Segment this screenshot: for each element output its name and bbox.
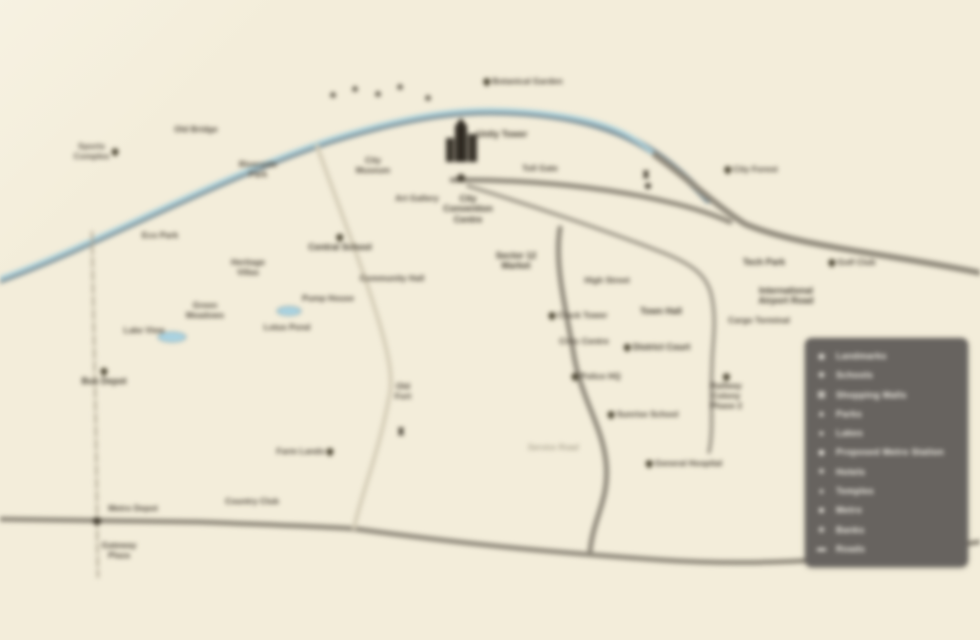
map-label: Lotus Pond bbox=[264, 323, 311, 333]
legend-icon: ■ bbox=[815, 506, 828, 515]
map-label-text: High Street bbox=[584, 276, 629, 286]
map-label: Community Hall bbox=[360, 274, 425, 284]
map-label: City Museum bbox=[356, 156, 390, 176]
map-label-text: Civic Centre bbox=[559, 337, 609, 347]
map-label-text: International Airport Road bbox=[759, 286, 814, 307]
map-label: District Court bbox=[624, 342, 691, 352]
legend-icon: ✚ bbox=[815, 371, 828, 380]
map-label-text: Tech Park bbox=[743, 257, 785, 267]
legend-label: Temples bbox=[836, 486, 874, 496]
map-label-text: Toll Gate bbox=[522, 164, 558, 174]
map-label-text: Clock Tower bbox=[558, 311, 608, 321]
marker-pin-icon bbox=[723, 165, 733, 175]
map-label: Country Club bbox=[225, 497, 279, 507]
map-label: Bus Depot bbox=[82, 368, 127, 386]
tree-icon-glyph: ♣ bbox=[330, 91, 337, 101]
map-label: City Convention Centre bbox=[443, 193, 493, 224]
tree-icon-glyph: ♣ bbox=[425, 94, 432, 104]
legend-icon: ◆ bbox=[815, 448, 828, 457]
map-label-text: Golf Club bbox=[837, 258, 875, 268]
tree-icon: ♣ bbox=[397, 83, 404, 93]
fort-icon: ♜ bbox=[397, 428, 406, 438]
marker-pin-icon bbox=[644, 459, 654, 469]
legend-row: ♦Temples bbox=[815, 482, 958, 500]
legend-row: ▬Roads bbox=[815, 540, 958, 558]
legend-row: ◆Proposed Metro Station bbox=[815, 443, 958, 461]
map-label-text: Unity Tower bbox=[477, 129, 528, 139]
map-label: General Hospital bbox=[646, 459, 723, 469]
map-label: Pump House bbox=[302, 294, 354, 304]
legend-row: ◉Landmarks bbox=[815, 347, 958, 365]
map-label: Riverside Park bbox=[239, 160, 277, 180]
map-label: Farm Lands bbox=[276, 447, 333, 457]
tower-icon-glyph: ♜ bbox=[642, 171, 651, 181]
marker-pin-icon bbox=[110, 147, 120, 157]
map-label: Botanical Garden bbox=[483, 77, 562, 87]
map-label-text: Farm Lands bbox=[276, 447, 324, 457]
map-label: Art Gallery bbox=[395, 194, 438, 204]
map-label: Cargo Terminal bbox=[728, 316, 790, 326]
map-label-text: Gateway Plaza bbox=[102, 541, 137, 561]
map-label-text: District Court bbox=[633, 342, 691, 352]
map-label-text: Botanical Garden bbox=[492, 77, 562, 87]
map-label-text: Community Hall bbox=[360, 274, 425, 284]
tree-icon: ♣ bbox=[352, 85, 359, 95]
map-canvas: Sports ComplexOld BridgeRiverside Park♣♣… bbox=[0, 0, 980, 640]
legend-label: Schools bbox=[836, 370, 873, 380]
map-label-text: Metro Depot bbox=[108, 504, 158, 514]
map-label-text: Art Gallery bbox=[395, 194, 438, 204]
map-label-text: City Forest bbox=[733, 165, 777, 175]
legend-row: ◈Banks bbox=[815, 521, 958, 539]
map-label-text: Riverside Park bbox=[239, 160, 277, 180]
map-legend: ◉Landmarks✚Schools▦Shopping Malls▲Parks●… bbox=[805, 338, 968, 567]
map-label: City Forest bbox=[724, 165, 777, 175]
legend-label: Parks bbox=[836, 409, 862, 419]
marker-pin-icon bbox=[606, 410, 616, 420]
map-label: Unity Tower bbox=[477, 129, 528, 139]
tree-icon: ♣ bbox=[375, 90, 382, 100]
tower-icon: ♜ bbox=[642, 171, 651, 181]
map-label-text: Sunrise School bbox=[617, 410, 679, 420]
map-label-text: Lotus Pond bbox=[264, 323, 311, 333]
map-label-text: Service Road bbox=[527, 443, 578, 453]
tree-icon-glyph: ♣ bbox=[352, 85, 359, 95]
map-label-text: Sector 12 Market bbox=[496, 251, 537, 272]
map-label-text: General Hospital bbox=[655, 459, 723, 469]
legend-row: ★Hotels bbox=[815, 463, 958, 481]
map-label: Civic Centre bbox=[559, 337, 609, 347]
legend-icon: ◈ bbox=[815, 525, 828, 534]
legend-label: Hotels bbox=[836, 467, 865, 477]
legend-row: ■Metro bbox=[815, 501, 958, 519]
tree-icon: ♣ bbox=[425, 94, 432, 104]
map-label-text: City Convention Centre bbox=[443, 193, 493, 224]
map-label: Old Fort bbox=[395, 382, 412, 402]
legend-row: ✚Schools bbox=[815, 366, 958, 384]
map-label: High Street bbox=[584, 276, 629, 286]
legend-icon: ▲ bbox=[815, 409, 828, 418]
map-label: Metro Depot bbox=[108, 504, 158, 514]
map-label: Railway Colony Phase 2 bbox=[710, 373, 742, 410]
marker-pin-icon bbox=[570, 372, 580, 382]
map-label-text: Pump House bbox=[302, 294, 354, 304]
map-label-text: Eco Park bbox=[142, 231, 178, 241]
legend-icon: ◉ bbox=[815, 352, 828, 361]
legend-label: Landmarks bbox=[836, 351, 887, 361]
marker-pin-icon bbox=[827, 258, 837, 268]
legend-label: Lakes bbox=[836, 428, 863, 438]
map-label-text: Police HQ bbox=[580, 372, 620, 382]
legend-row: ●Lakes bbox=[815, 424, 958, 442]
map-label-text: City Museum bbox=[356, 156, 390, 176]
map-label: Gateway Plaza bbox=[102, 541, 137, 561]
map-label-text: Central School bbox=[308, 242, 372, 252]
map-label-text: Railway Colony Phase 2 bbox=[710, 381, 742, 410]
legend-icon: ● bbox=[815, 429, 828, 438]
legend-icon: ▦ bbox=[815, 390, 828, 399]
map-label: Police HQ bbox=[571, 372, 620, 382]
legend-icon: ▬ bbox=[815, 544, 828, 553]
map-label-text: Green Meadows bbox=[186, 301, 224, 321]
legend-row: ▲Parks bbox=[815, 405, 958, 423]
map-label: Sunrise School bbox=[608, 410, 679, 420]
map-label-text: Bus Depot bbox=[82, 376, 127, 386]
map-label: Toll Gate bbox=[522, 164, 558, 174]
map-label-text: Heritage Villas bbox=[231, 258, 265, 278]
map-label: Clock Tower bbox=[549, 311, 608, 321]
map-label-text: Old Fort bbox=[395, 382, 412, 402]
map-label-text: Country Club bbox=[225, 497, 279, 507]
map-label: Tech Park bbox=[743, 257, 785, 267]
tree-icon-glyph: ♣ bbox=[375, 90, 382, 100]
legend-label: Roads bbox=[836, 544, 865, 554]
map-label: Eco Park bbox=[142, 231, 178, 241]
map-label: Service Road bbox=[527, 443, 578, 453]
map-label-text: Cargo Terminal bbox=[728, 316, 790, 326]
tree-icon-glyph: ♣ bbox=[397, 83, 404, 93]
map-label: Golf Club bbox=[828, 258, 875, 268]
location-map: Sports ComplexOld BridgeRiverside Park♣♣… bbox=[0, 0, 980, 640]
legend-label: Metro bbox=[836, 505, 862, 515]
legend-row: ▦Shopping Malls bbox=[815, 386, 958, 404]
map-label: International Airport Road bbox=[759, 286, 814, 307]
tree-icon: ♣ bbox=[330, 91, 337, 101]
map-label: Old Bridge bbox=[174, 125, 217, 135]
map-label: Central School bbox=[308, 234, 372, 252]
marker-pin-icon bbox=[622, 342, 632, 352]
map-label-text: Lake View bbox=[124, 326, 165, 336]
map-label: Heritage Villas bbox=[231, 258, 265, 278]
legend-icon: ★ bbox=[815, 467, 828, 476]
marker-pin-icon bbox=[547, 311, 557, 321]
map-label: Town Hall bbox=[640, 306, 682, 316]
legend-label: Banks bbox=[836, 525, 865, 535]
legend-icon: ♦ bbox=[815, 487, 828, 496]
map-label-text: Sports Complex bbox=[74, 142, 110, 162]
fort-icon-glyph: ♜ bbox=[397, 428, 406, 438]
map-label-text: Old Bridge bbox=[174, 125, 217, 135]
marker-pin-icon bbox=[335, 232, 345, 242]
marker-pin-icon bbox=[325, 447, 335, 457]
legend-label: Shopping Malls bbox=[836, 390, 907, 400]
legend-label: Proposed Metro Station bbox=[836, 447, 944, 457]
marker-pin-icon bbox=[482, 77, 492, 87]
map-label: Sector 12 Market bbox=[496, 251, 537, 272]
marker-pin-icon bbox=[99, 366, 109, 376]
map-label: Lake View bbox=[124, 326, 165, 336]
map-label-text: Town Hall bbox=[640, 306, 682, 316]
map-label: Green Meadows bbox=[186, 301, 224, 321]
map-label: Sports Complex bbox=[74, 142, 119, 162]
